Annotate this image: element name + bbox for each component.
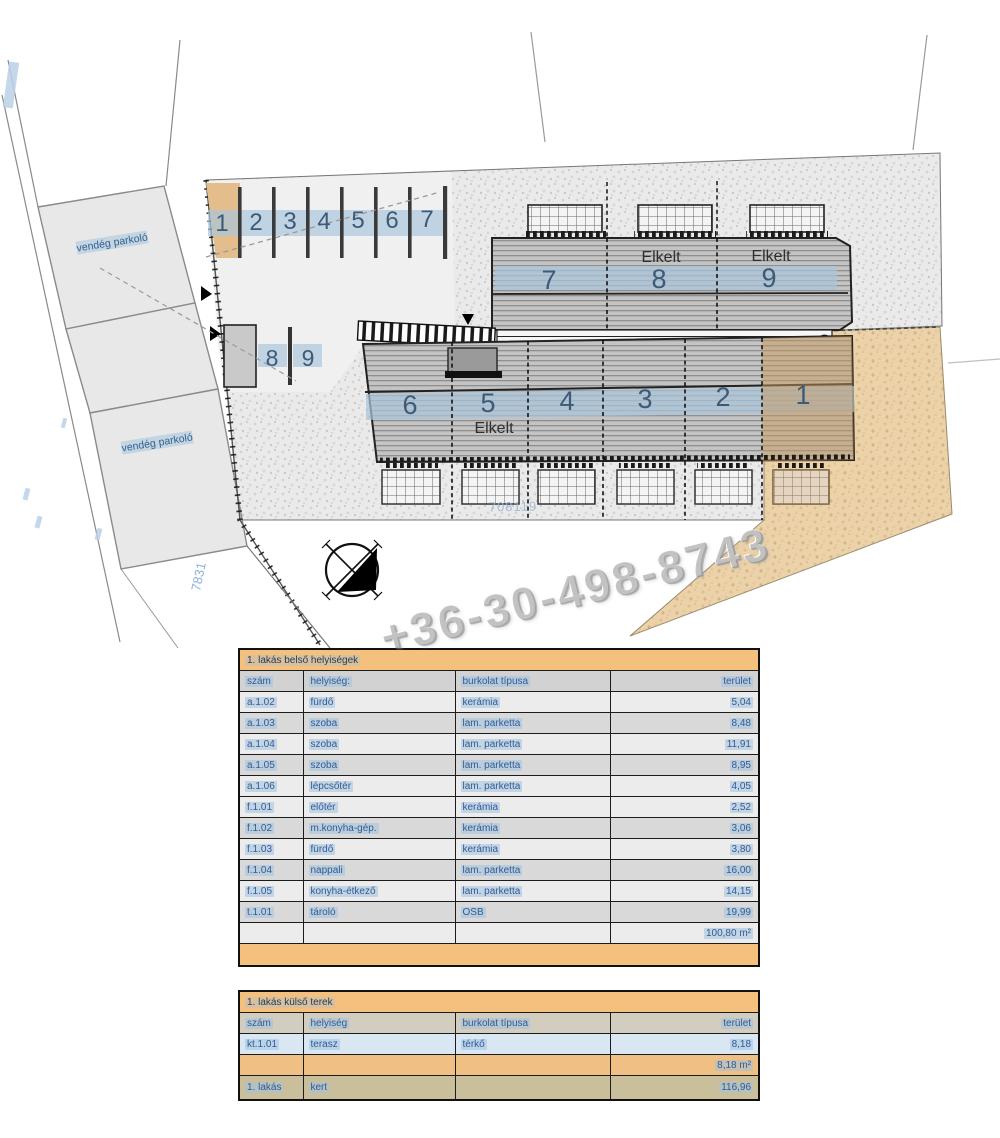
table-row: 100,80 m² <box>239 923 759 944</box>
table-cell <box>455 1055 610 1076</box>
svg-text:6: 6 <box>385 207 398 234</box>
table-cell: f.1.05 <box>239 881 303 902</box>
table-cell: előtér <box>303 797 455 818</box>
table-cell: m.konyha-gép. <box>303 818 455 839</box>
table-row: f.1.03fürdőkerámia3,80 <box>239 839 759 860</box>
table-cell: szoba <box>303 755 455 776</box>
col-szam: szám <box>245 676 273 687</box>
table-cell <box>239 923 303 944</box>
table-cell: szoba <box>303 734 455 755</box>
table-cell: konyha-étkező <box>303 881 455 902</box>
table-cell: a.1.04 <box>239 734 303 755</box>
col-terulet: terület <box>721 1018 753 1029</box>
table-cell: t.1.01 <box>239 902 303 923</box>
unit-1-number: 1 <box>795 380 810 410</box>
table-cell: 1. lakás <box>239 1076 303 1101</box>
exterior-table-title-row: 1. lakás külső terek <box>239 991 759 1013</box>
table-row: a.1.02fürdőkerámia5,04 <box>239 692 759 713</box>
interior-table-title: 1. lakás belső helyiségek <box>245 655 360 666</box>
table-row: t.1.01tárolóOSB19,99 <box>239 902 759 923</box>
unit-5-number: 5 <box>480 388 495 418</box>
table-cell: fürdő <box>303 692 455 713</box>
svg-text:9: 9 <box>302 345 315 371</box>
svg-text:2: 2 <box>249 209 262 236</box>
table-cell: f.1.02 <box>239 818 303 839</box>
interior-table-title-row: 1. lakás belső helyiségek <box>239 649 759 671</box>
interior-table-body: a.1.02fürdőkerámia5,04a.1.03szobalam. pa… <box>239 692 759 944</box>
svg-text:3: 3 <box>283 208 296 235</box>
table-cell: 19,99 <box>610 902 759 923</box>
table-cell <box>239 1055 303 1076</box>
table-cell: 8,18 <box>610 1034 759 1055</box>
table-cell: 116,96 <box>610 1076 759 1101</box>
table-cell: tároló <box>303 902 455 923</box>
unit-3-number: 3 <box>637 384 652 414</box>
table-cell: 2,52 <box>610 797 759 818</box>
table-cell: 8,95 <box>610 755 759 776</box>
unit-7-number: 7 <box>541 265 556 295</box>
table-cell: szoba <box>303 713 455 734</box>
exterior-table-body: kt.1.01terasztérkő8,188,18 m²1. lakásker… <box>239 1034 759 1101</box>
table-row: f.1.01előtérkerámia2,52 <box>239 797 759 818</box>
table-cell: a.1.05 <box>239 755 303 776</box>
table-cell: lam. parketta <box>455 713 610 734</box>
table-cell: 8,48 <box>610 713 759 734</box>
svg-text:7: 7 <box>420 206 433 233</box>
col-helyiseg: helyiség <box>309 1018 350 1029</box>
table-cell: f.1.03 <box>239 839 303 860</box>
col-burkolat: burkolat típusa <box>461 676 531 687</box>
table-cell: 14,15 <box>610 881 759 902</box>
table-cell: 5,04 <box>610 692 759 713</box>
col-burkolat: burkolat típusa <box>461 1018 531 1029</box>
upper-building: 7 8 9 Elkelt Elkelt <box>492 205 852 356</box>
table-row: a.1.03szobalam. parketta8,48 <box>239 713 759 734</box>
table-cell: lam. parketta <box>455 881 610 902</box>
unit-8-number: 8 <box>651 264 666 294</box>
col-szam: szám <box>245 1018 273 1029</box>
table-cell: 8,18 m² <box>610 1055 759 1076</box>
table-cell: kerámia <box>455 797 610 818</box>
table-cell: 16,00 <box>610 860 759 881</box>
table-cell: a.1.03 <box>239 713 303 734</box>
table-cell: lam. parketta <box>455 776 610 797</box>
table-cell: a.1.06 <box>239 776 303 797</box>
table-cell: 100,80 m² <box>610 923 759 944</box>
exterior-table-header-row: szám helyiség burkolat típusa terület <box>239 1013 759 1034</box>
table-row: a.1.05szobalam. parketta8,95 <box>239 755 759 776</box>
table-cell: f.1.04 <box>239 860 303 881</box>
table-cell: lam. parketta <box>455 734 610 755</box>
svg-text:1: 1 <box>215 210 228 237</box>
unit-9-sold: Elkelt <box>751 248 791 265</box>
unit-8-sold: Elkelt <box>641 249 681 266</box>
table-cell: lépcsőtér <box>303 776 455 797</box>
svg-text:5: 5 <box>351 207 364 234</box>
table-row: a.1.06lépcsőtérlam. parketta4,05 <box>239 776 759 797</box>
interior-rooms-table: 1. lakás belső helyiségek szám helyiség:… <box>238 648 760 967</box>
site-plan-sheet: vendég parkoló vendég parkoló 1 2 3 4 5 … <box>0 0 1000 1138</box>
table-cell: kerámia <box>455 692 610 713</box>
table-row: 8,18 m² <box>239 1055 759 1076</box>
table-cell: 3,06 <box>610 818 759 839</box>
table-cell: kt.1.01 <box>239 1034 303 1055</box>
table-cell: lam. parketta <box>455 860 610 881</box>
table-cell: nappali <box>303 860 455 881</box>
table-cell: lam. parketta <box>455 755 610 776</box>
table-cell: fürdő <box>303 839 455 860</box>
table-cell <box>303 1055 455 1076</box>
parcel-number-site: 708119 <box>489 499 538 515</box>
unit-4-number: 4 <box>559 386 574 416</box>
svg-text:4: 4 <box>317 208 330 235</box>
table-row: 1. lakáskert116,96 <box>239 1076 759 1101</box>
unit-5-sold: Elkelt <box>474 420 514 437</box>
unit-2-number: 2 <box>715 382 730 412</box>
table-cell: 11,91 <box>610 734 759 755</box>
interior-table-footer <box>239 944 759 967</box>
svg-text:8: 8 <box>266 345 279 371</box>
table-cell: kerámia <box>455 818 610 839</box>
table-row: f.1.04nappalilam. parketta16,00 <box>239 860 759 881</box>
table-row: kt.1.01terasztérkő8,18 <box>239 1034 759 1055</box>
col-terulet: terület <box>721 676 753 687</box>
table-row: a.1.04szobalam. parketta11,91 <box>239 734 759 755</box>
unit-6-number: 6 <box>402 390 417 420</box>
table-cell: terasz <box>303 1034 455 1055</box>
table-cell <box>455 1076 610 1101</box>
exterior-table-title: 1. lakás külső terek <box>245 997 335 1008</box>
exterior-spaces-table: 1. lakás külső terek szám helyiség burko… <box>238 990 760 1101</box>
table-cell: OSB <box>455 902 610 923</box>
table-cell: f.1.01 <box>239 797 303 818</box>
table-cell <box>455 923 610 944</box>
table-cell: kerámia <box>455 839 610 860</box>
table-cell <box>303 923 455 944</box>
site-plan-drawing: vendég parkoló vendég parkoló 1 2 3 4 5 … <box>0 0 1000 648</box>
table-cell: 3,80 <box>610 839 759 860</box>
upper-terraces <box>524 205 828 237</box>
unit-9-number: 9 <box>761 263 776 293</box>
interior-table-header-row: szám helyiség: burkolat típusa terület <box>239 671 759 692</box>
table-cell: a.1.02 <box>239 692 303 713</box>
table-cell: kert <box>303 1076 455 1101</box>
table-cell: térkő <box>455 1034 610 1055</box>
table-cell: 4,05 <box>610 776 759 797</box>
table-row: f.1.05konyha-étkezőlam. parketta14,15 <box>239 881 759 902</box>
col-helyiseg: helyiség: <box>309 676 352 687</box>
table-row: f.1.02m.konyha-gép.kerámia3,06 <box>239 818 759 839</box>
